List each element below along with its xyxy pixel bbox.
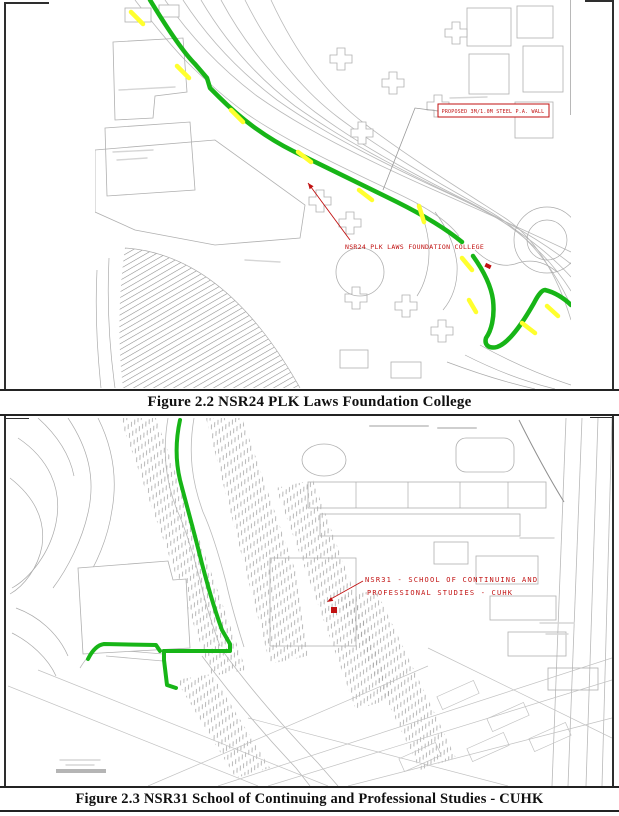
page-border-top-left-tick	[4, 2, 49, 4]
nsr24-label: NSR24 PLK LAWS FOUNDATION COLLEGE	[345, 243, 484, 251]
page-border-top-right-tick	[585, 0, 614, 2]
barrier-label: PROPOSED 3M/1.0M STEEL P.A. WALL	[442, 109, 545, 115]
figure-2-2-caption-text: Figure 2.2 NSR24 PLK Laws Foundation Col…	[148, 394, 472, 411]
figure-2-2-caption: Figure 2.2 NSR24 PLK Laws Foundation Col…	[0, 389, 619, 416]
map2-labels-illegible	[370, 426, 574, 634]
figure-2-2-map: PROPOSED 3M/1.0M STEEL P.A. WALL NSR24 P…	[95, 0, 571, 389]
nsr31-label-line1: NSR31 - SCHOOL OF CONTINUING AND	[365, 576, 538, 584]
figure-2-3-caption: Figure 2.3 NSR31 School of Continuing an…	[0, 786, 619, 812]
nsr-marker-square	[331, 607, 337, 613]
leader-arrow	[308, 183, 314, 189]
map2-scale-bar	[56, 760, 106, 773]
map1-road-corridor	[135, 0, 571, 320]
map1-nsr-annotation: NSR24 PLK LAWS FOUNDATION COLLEGE	[308, 183, 492, 269]
map2-lower-road-web	[8, 648, 612, 786]
nsr31-label-line2: PROFESSIONAL STUDIES - CUHK	[367, 589, 513, 597]
figure-2-3-caption-text: Figure 2.3 NSR31 School of Continuing an…	[75, 791, 543, 808]
map1-barrier-callout: PROPOSED 3M/1.0M STEEL P.A. WALL	[383, 104, 549, 190]
figure-2-3-map: NSR31 - SCHOOL OF CONTINUING AND PROFESS…	[8, 418, 612, 786]
map1-slope-hatching	[96, 248, 300, 388]
report-page: { "document": { "figures": [ { "caption"…	[0, 0, 619, 816]
